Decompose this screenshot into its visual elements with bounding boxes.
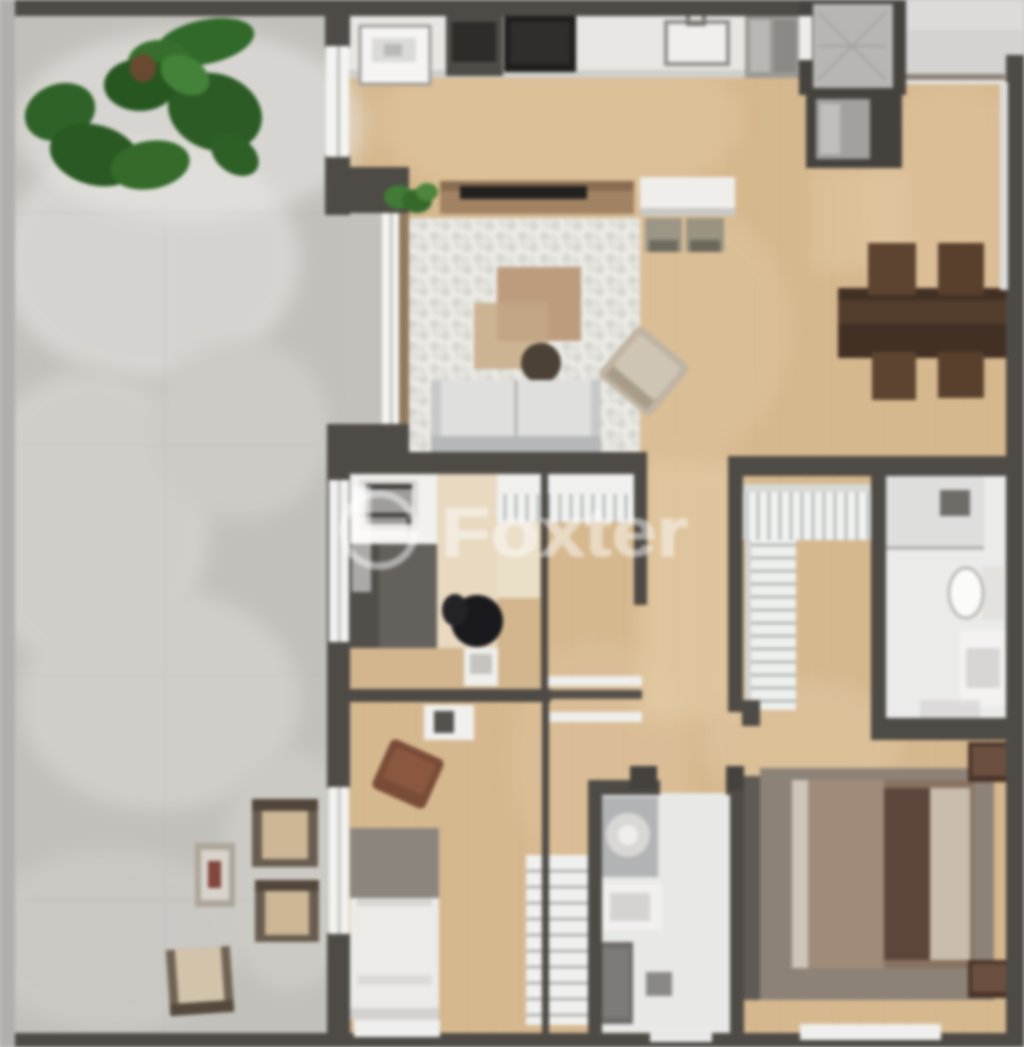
svg-text:Foxter: Foxter [441,493,688,571]
